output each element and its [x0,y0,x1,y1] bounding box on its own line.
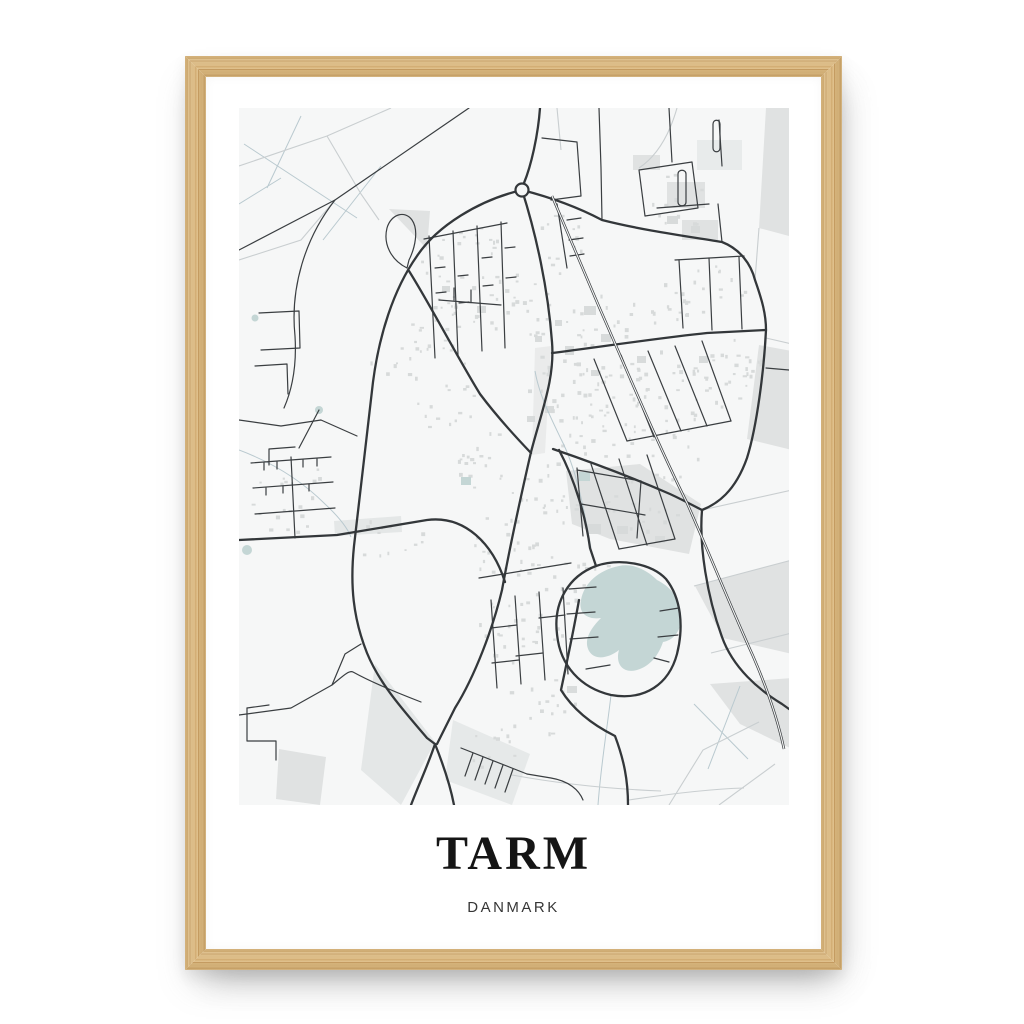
poster-title: TARM [436,830,591,878]
map-poster: TARM DANMARK [206,77,821,949]
poster-subtitle: DANMARK [467,899,560,916]
frame-bar-top [185,56,842,77]
wooden-picture-frame: TARM DANMARK [185,56,842,970]
city-map-artwork [239,108,789,805]
map-roundabout [515,184,528,197]
frame-bar-right [821,56,842,970]
map-background [239,108,789,805]
frame-bar-bottom [185,949,842,970]
product-photo-background: TARM DANMARK [0,0,1024,1024]
frame-bar-left [185,56,206,970]
